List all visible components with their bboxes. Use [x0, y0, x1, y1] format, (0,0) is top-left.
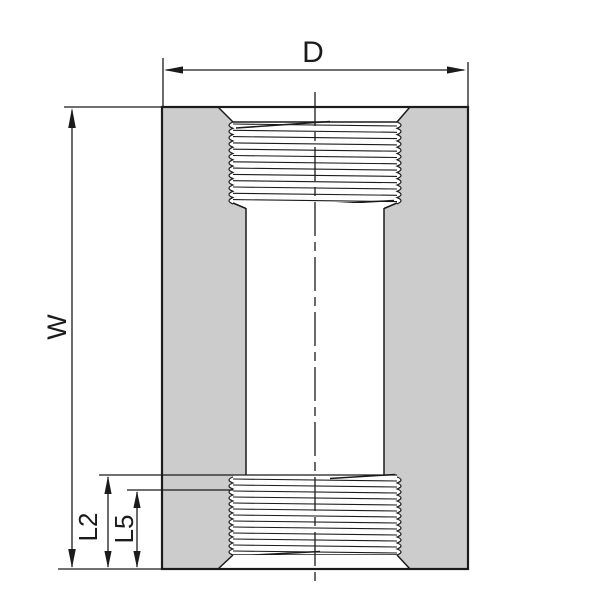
dim-label-w: W	[42, 307, 72, 347]
arrowhead-down	[104, 551, 111, 568]
bottom-threaded-bore	[218, 475, 410, 570]
dim-label-d: D	[293, 38, 333, 70]
arrowhead-down	[68, 549, 76, 568]
arrowhead-down	[133, 551, 140, 568]
arrowhead-up	[133, 491, 140, 508]
dim-label-l2: L2	[73, 505, 103, 549]
arrowhead-right	[447, 66, 466, 73]
technical-drawing-page: D W L2 L5	[0, 0, 600, 600]
arrowhead-left	[164, 66, 183, 73]
top-threaded-bore	[218, 107, 410, 209]
arrowhead-up	[104, 476, 111, 494]
dim-label-l5: L5	[109, 507, 139, 551]
arrowhead-up	[68, 108, 76, 128]
dimension-w	[58, 107, 163, 569]
